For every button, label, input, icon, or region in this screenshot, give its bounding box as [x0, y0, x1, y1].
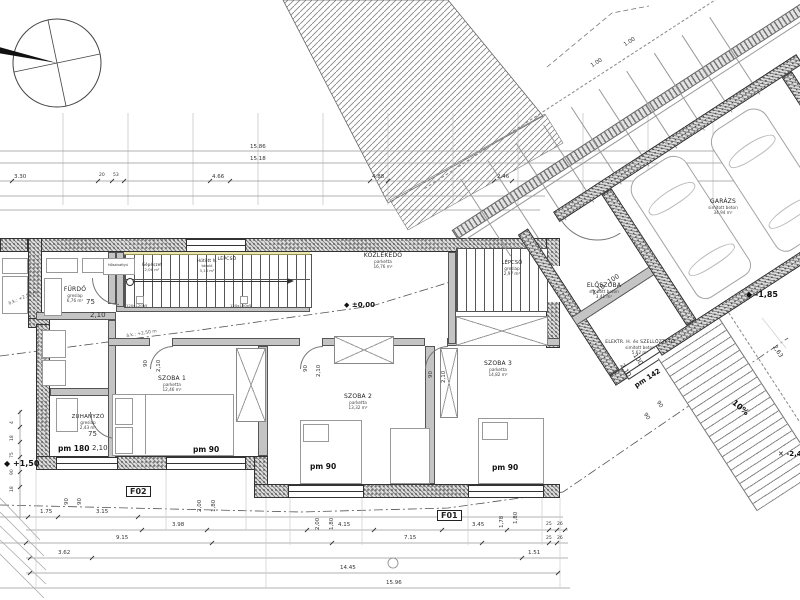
stair-void [456, 316, 548, 346]
window-dim: 1,80 [211, 500, 217, 512]
dim-label: 18 [10, 435, 15, 441]
section-marker-f02: F02 [126, 486, 151, 497]
window-dim: 2,00 [315, 518, 321, 530]
floor-plan: FÜRDŐ greslap 6,76 m² ZUHANYZÓ greslap 2… [0, 0, 800, 600]
wardrobe [440, 348, 458, 418]
stair-post-note: 120x120x5 [126, 303, 147, 308]
wardrobe [334, 336, 394, 364]
dim-label: 3.45 [472, 522, 484, 528]
dryer [42, 360, 66, 386]
rear-window [685, 239, 738, 280]
room-label-zuhanyzo: ZUHANYZÓ greslap 2,43 m² [53, 414, 123, 430]
dim-label: 26 [557, 536, 563, 541]
level-marker: ◆ -1,85 [746, 290, 778, 299]
bed-line [145, 394, 146, 454]
section-marker-f01: F01 [437, 510, 462, 521]
door-tag: 75 [88, 430, 97, 438]
door-tag: 2,10 [92, 444, 108, 452]
wardrobe [236, 348, 266, 422]
dim-label: 1.75 [40, 509, 52, 515]
room-label-garazs: GARÁZS simított beton 34,94 m² [688, 198, 758, 215]
room-label-hutott: Hűtött h. tároló 3,16 m² [182, 258, 232, 273]
north-compass-icon [0, 19, 101, 107]
dim-label: 1.51 [528, 550, 540, 556]
insulation-highlight [124, 252, 310, 255]
washbasin [82, 258, 104, 273]
dim-label: 4.66 [212, 174, 224, 180]
dim-label: 90 [10, 469, 15, 475]
dim-label: 53 [113, 173, 119, 178]
room-label-eloszoba: ELŐSZOBA simított beton 3,41 m² [569, 282, 639, 299]
window-dim: 1,80 [513, 512, 519, 524]
door-tag: 2,10 [156, 360, 162, 372]
dim-label: 25 [546, 522, 552, 527]
door-tag: 90 [428, 371, 434, 378]
dim-label: 15.18 [250, 156, 266, 162]
room-label-szoba1: SZOBA 1 parketta 12,46 m² [137, 375, 207, 392]
pillow [482, 422, 508, 440]
walkline-arrow-icon [287, 278, 294, 284]
dim-label: 14.45 [340, 565, 356, 571]
stair-walkline [130, 281, 288, 282]
washing-machine [42, 330, 66, 358]
stair-post-note: 120x120x5 [230, 303, 251, 308]
dim-label: 25 [546, 536, 552, 541]
dim-label: 7.15 [404, 535, 416, 541]
window-tag-pm180: pm 180 [58, 444, 89, 453]
dim-label: 75 [10, 452, 15, 458]
dim-label: 26 [557, 522, 563, 527]
dim-label: 4.88 [372, 174, 384, 180]
room-label-kozlekedo: KÖZLEKEDŐ parketta 16,76 m² [348, 252, 418, 269]
room-label-furdo: FÜRDŐ greslap 6,76 m² [40, 286, 110, 303]
partition [50, 388, 116, 396]
window-dim: 2,00 [197, 500, 203, 512]
window-dim: 1,80 [329, 518, 335, 530]
level-marker: ◆ ±0,00 [344, 301, 375, 309]
dim-label: 3.15 [96, 509, 108, 515]
dim-label: 3.30 [14, 174, 26, 180]
survey-point-icon [388, 558, 398, 568]
dim-label: 3.62 [58, 550, 70, 556]
level-marker: ✕ -2,45 [778, 450, 800, 458]
window-tag-pm90: pm 90 [310, 462, 336, 471]
fixture [2, 258, 28, 274]
partition [448, 252, 456, 344]
pillow [115, 427, 133, 454]
window-tag-pm90: pm 90 [193, 445, 219, 454]
windshield [725, 129, 779, 172]
door-tag: 2,10 [441, 371, 447, 383]
wall [0, 238, 28, 252]
dim-label: 90 [77, 498, 83, 505]
window-pm90-a [166, 457, 246, 470]
dim-label: 3.98 [172, 522, 184, 528]
dim-label: 90 [64, 498, 70, 505]
window-tag-pm90: pm 90 [492, 463, 518, 472]
washbasin [46, 258, 78, 273]
window [186, 239, 246, 252]
window-dim: 1,78 [499, 516, 505, 528]
room-label-szoba2: SZOBA 2 parketta 13,32 m² [323, 393, 393, 410]
pillow [303, 424, 329, 442]
door-tag: 2,10 [90, 311, 106, 319]
window-pm90-c [468, 485, 544, 498]
door-tag: 90 [143, 360, 149, 367]
dim-label: 9.15 [116, 535, 128, 541]
dim-label: 2.46 [497, 174, 509, 180]
window-pm180 [56, 457, 118, 470]
window-pm90-b [288, 485, 364, 498]
partition [172, 338, 300, 346]
room-label-gepeszet: Gépészet 2,06 m² [132, 262, 172, 272]
dim-label: 15.96 [386, 580, 402, 586]
room-label-hoszivattyu: Hőszivattyú [104, 263, 132, 267]
dim-label: 15.86 [250, 144, 266, 150]
dim-label: 18 [10, 486, 15, 492]
room-label-szoba3: SZOBA 3 parketta 14,82 m² [463, 360, 533, 377]
room-label-elektr: ELEKTR. H. és SZELLŐZTETŐ simított beton… [585, 340, 695, 355]
room-label-lepcso-2: LÉPCSŐ greslap 2,97 m² [477, 260, 547, 276]
dim-label: 4 [10, 421, 15, 424]
door-tag: 90 [303, 365, 309, 372]
dim-label: 4.15 [338, 522, 350, 528]
door-tag: 2,10 [316, 365, 322, 377]
partition [108, 338, 150, 346]
rear-window [765, 192, 800, 233]
level-marker: ◆ +1,50 [4, 459, 39, 468]
walkline-start-icon [126, 278, 134, 286]
furniture [390, 428, 430, 484]
dim-label: 20 [99, 173, 105, 178]
stair-rail [124, 279, 310, 280]
